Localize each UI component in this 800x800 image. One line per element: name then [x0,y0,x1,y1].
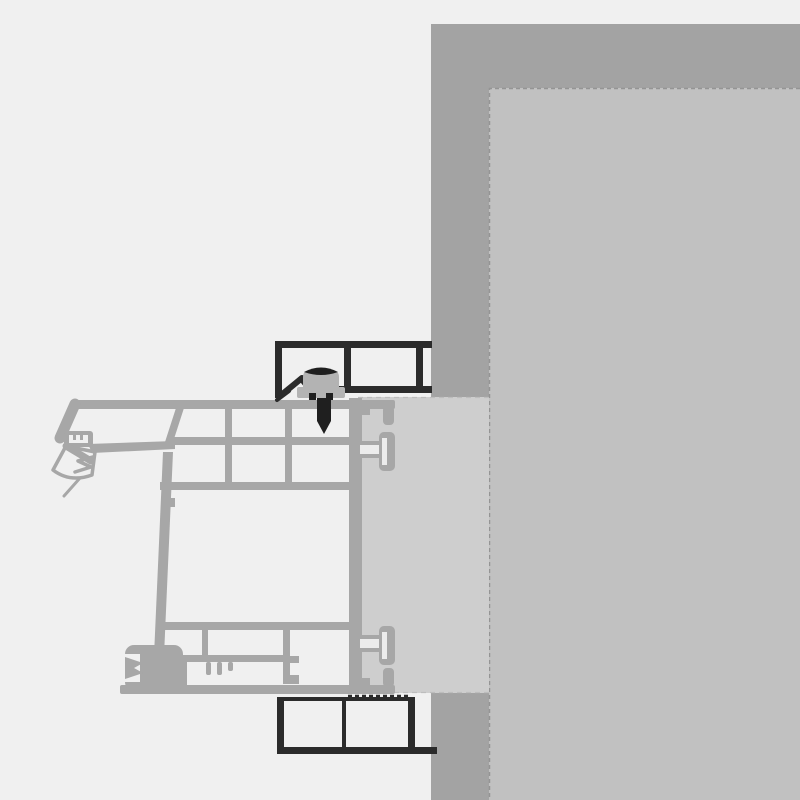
frame-web [160,482,352,490]
frame-web [170,437,352,445]
trim-bottom-bar [336,386,432,393]
trim-bottom-bar [277,747,437,754]
trim-top-bar [275,341,432,348]
window-frame-profile [53,398,395,694]
frame-web [285,407,292,487]
technical-drawing-canvas [0,0,800,800]
trim-divider [342,699,346,751]
gasket-wing-zigzag [75,457,93,472]
installation-cross-section-drawing [0,0,800,800]
interior-reveal [489,88,800,800]
frame-top-flange [76,400,395,409]
frame-web [202,630,208,657]
frame-tooth [217,662,222,675]
hardware-groove [106,645,183,691]
screw-washer [297,387,345,398]
trim-right-bar [408,697,415,754]
trim-left-bar [277,697,284,754]
screw-thread-mark [309,393,316,400]
trim-left-bar [275,341,282,398]
frame-web-foot-notch [290,663,299,675]
flange-hook-bottom [383,668,394,687]
frame-web [88,441,175,453]
frame-web [283,630,290,658]
frame-web [225,407,232,487]
frame-wall-nub [165,498,175,507]
gasket-fang [80,435,83,440]
frame-web [165,408,184,442]
anchor-cap-slit [382,632,387,659]
hardware-groove-slot [106,654,140,682]
gasket-wing-tail [64,478,80,496]
frame-web [180,655,284,662]
gasket-chamber-cavity [69,435,88,443]
flange-lug-bottom [360,678,370,689]
frame-web [160,622,352,630]
anchor-stem-core [360,639,381,648]
screw-tip [317,421,331,434]
frame-tooth [206,662,211,675]
anchor-stem-core [360,445,381,454]
gasket-fang [73,435,76,440]
flange-hook-top [383,406,394,425]
exterior-trim-bottom [277,696,437,754]
trim-divider [416,346,423,393]
frame-tooth [228,662,233,671]
trim-divider [344,346,351,393]
screw-shaft [317,398,331,421]
anchor-cap-slit [382,438,387,465]
flange-lug-top [360,404,370,415]
